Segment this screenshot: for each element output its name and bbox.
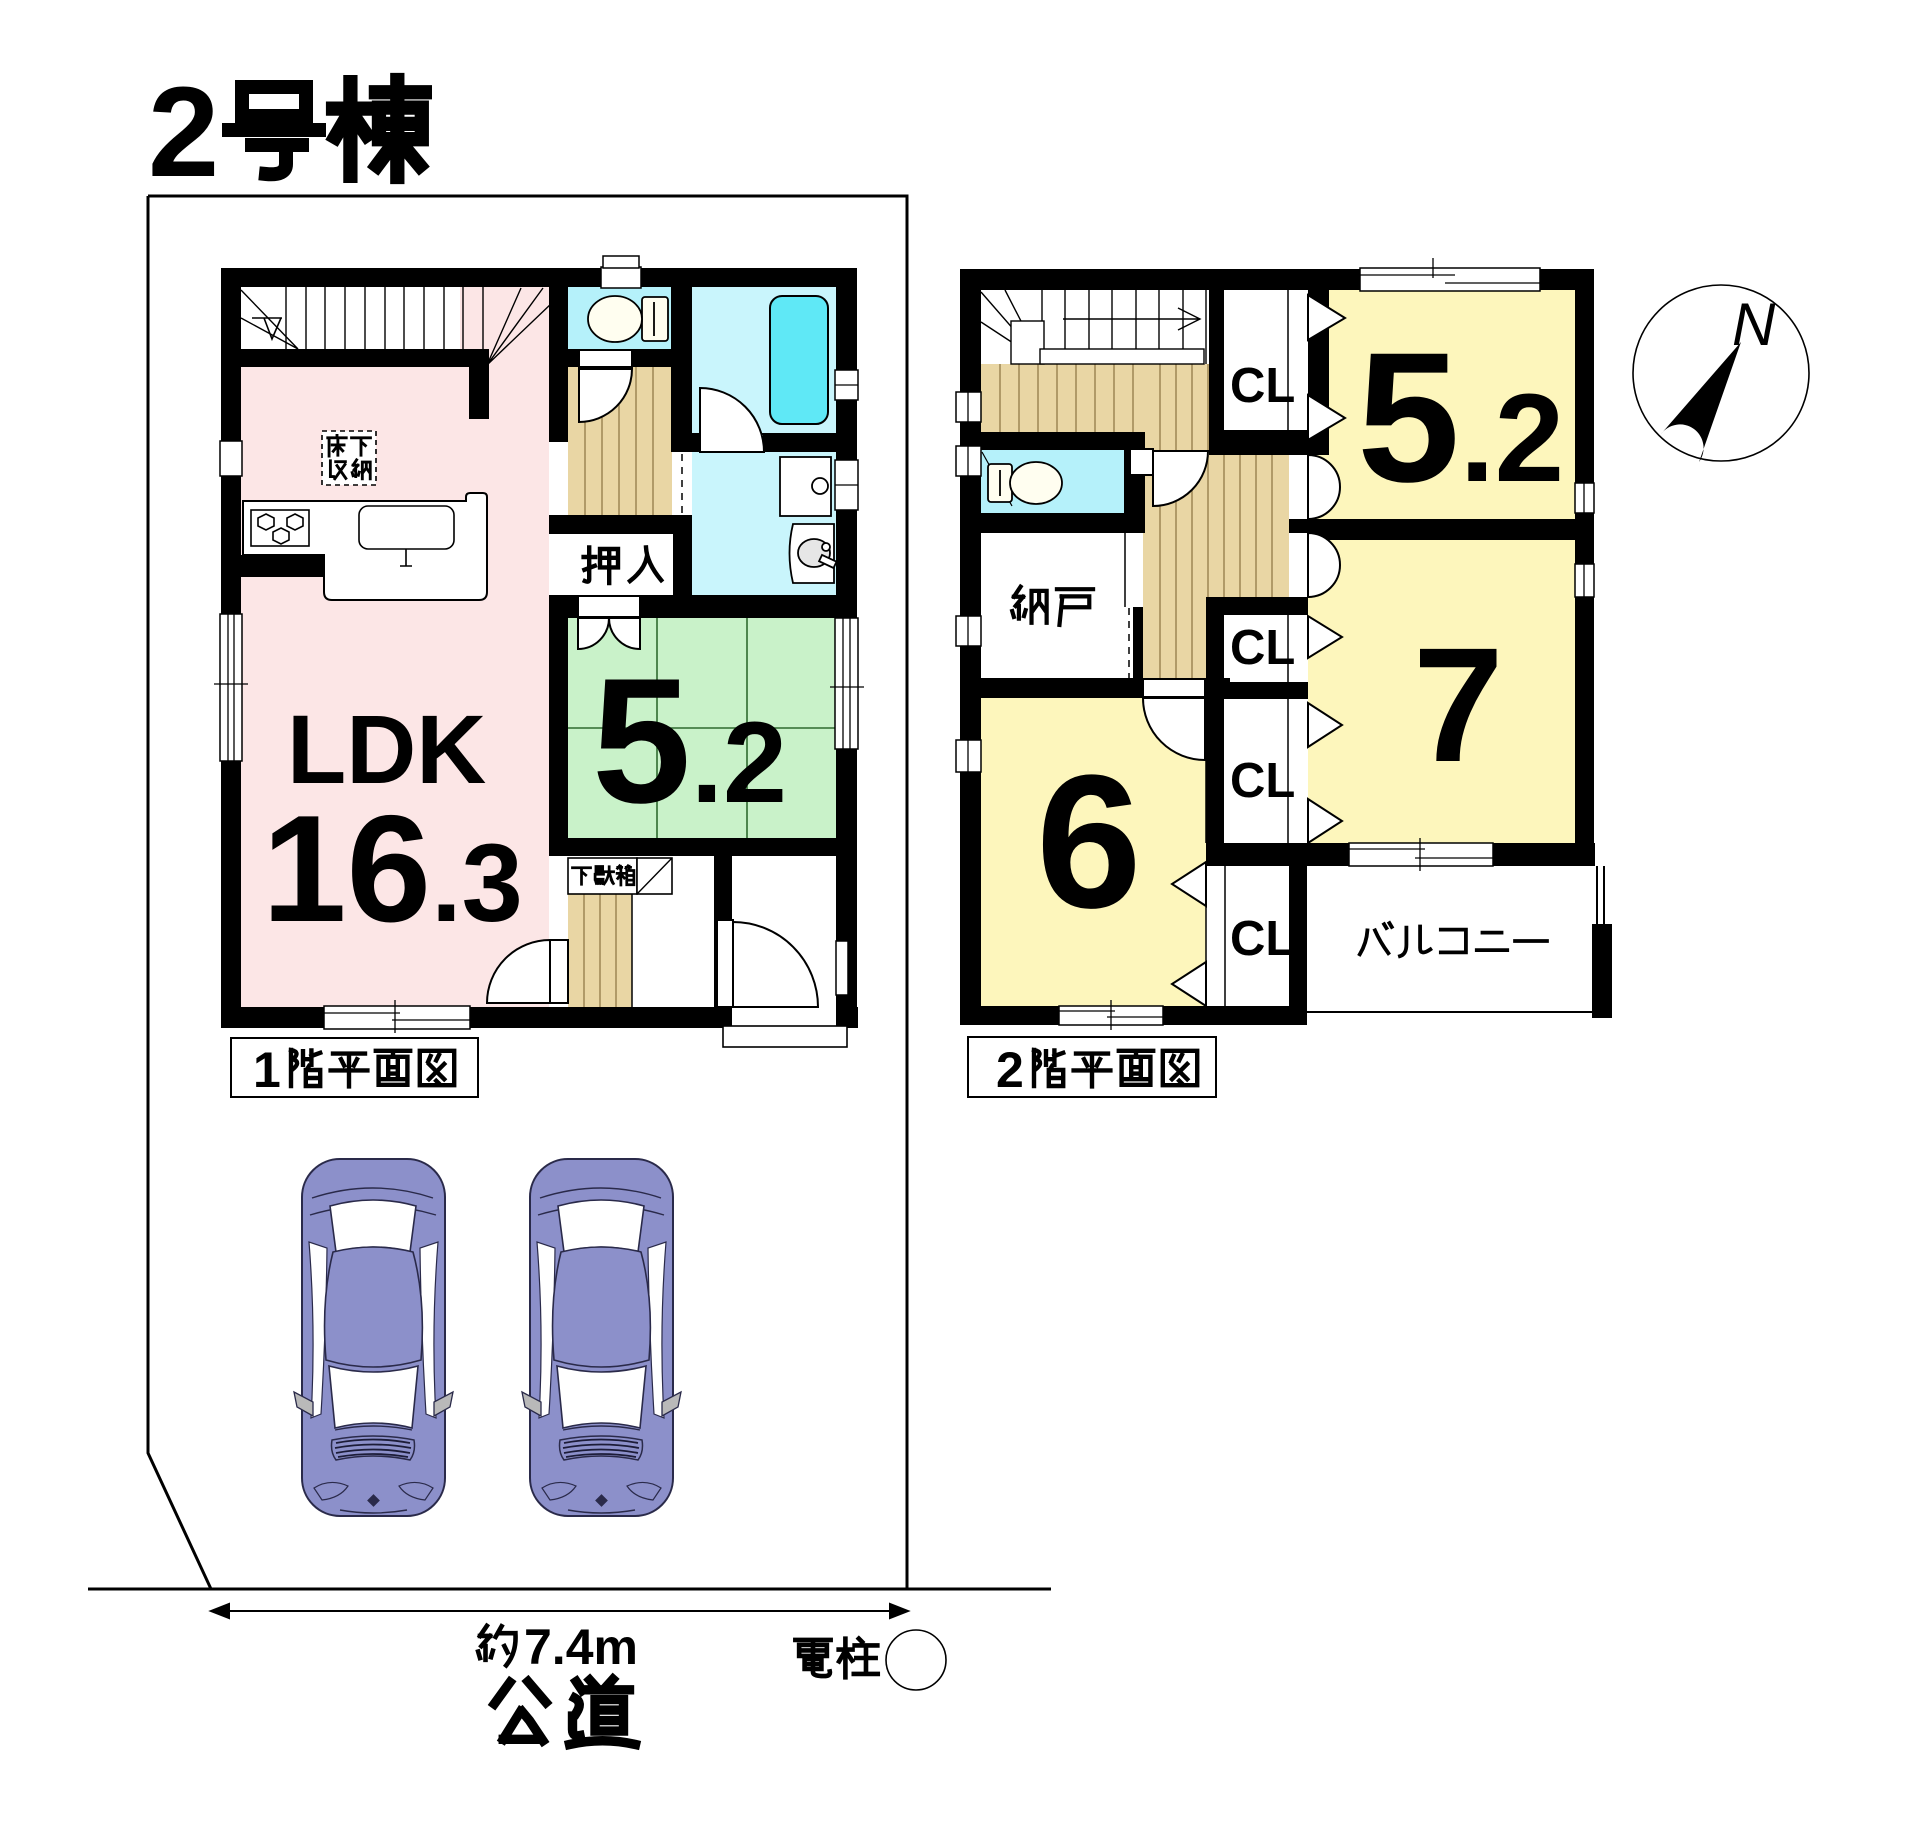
svg-text:CL: CL — [1230, 621, 1295, 675]
svg-text:2: 2 — [148, 61, 219, 204]
svg-text:1: 1 — [253, 1042, 281, 1098]
svg-text:6: 6 — [1036, 736, 1142, 948]
svg-text:CL: CL — [1230, 754, 1295, 808]
svg-text:7.4m: 7.4m — [524, 1619, 638, 1675]
svg-text:CL: CL — [1230, 359, 1295, 413]
svg-text:2: 2 — [996, 1042, 1024, 1098]
svg-text:CL: CL — [1230, 912, 1295, 966]
svg-text:7: 7 — [1413, 613, 1504, 796]
